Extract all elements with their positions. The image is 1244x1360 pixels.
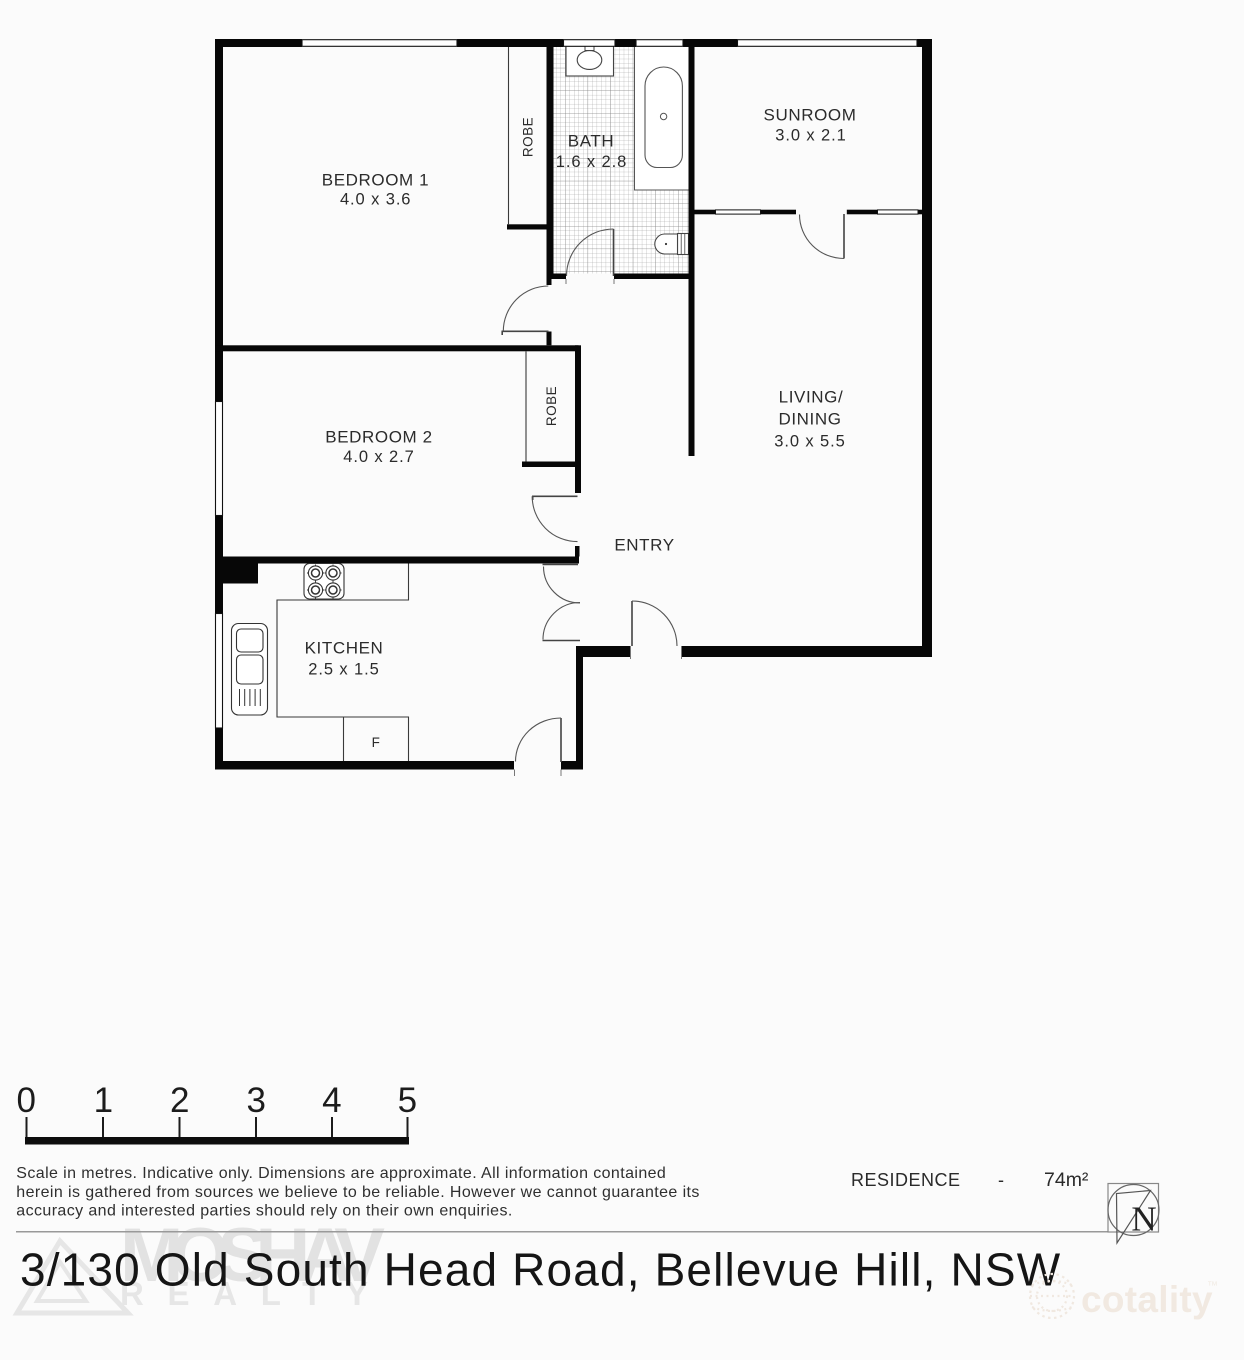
svg-text:LIVING/: LIVING/ [779,388,844,407]
svg-text:™: ™ [1207,1280,1218,1292]
svg-text:BEDROOM 1: BEDROOM 1 [322,171,429,190]
svg-text:F: F [372,735,381,750]
svg-text:1.6 x 2.8: 1.6 x 2.8 [556,153,627,171]
svg-text:4.0 x 2.7: 4.0 x 2.7 [343,448,414,466]
svg-text:BEDROOM 2: BEDROOM 2 [325,428,432,447]
svg-text:ENTRY: ENTRY [614,536,674,555]
svg-text:KITCHEN: KITCHEN [305,639,384,658]
svg-text:3.0 x 2.1: 3.0 x 2.1 [775,127,846,145]
svg-text:RESIDENCE: RESIDENCE [851,1170,961,1190]
svg-text:BATH: BATH [568,132,614,151]
svg-text:ROBE: ROBE [521,117,536,157]
svg-text:N: N [1131,1200,1156,1239]
svg-text:ROBE: ROBE [544,386,559,426]
svg-text:4: 4 [322,1081,341,1120]
svg-text:4.0 x 3.6: 4.0 x 3.6 [340,191,411,209]
svg-text:Scale in metres. Indicative on: Scale in metres. Indicative only. Dimens… [16,1165,666,1182]
svg-text:0: 0 [16,1081,35,1120]
svg-text:DINING: DINING [778,410,841,429]
svg-text:2: 2 [170,1081,189,1120]
svg-text:herein is gathered from source: herein is gathered from sources we belie… [16,1184,699,1201]
svg-text:3: 3 [246,1081,265,1120]
svg-text:5: 5 [398,1081,417,1120]
svg-text:3/130 Old South Head Road, Bel: 3/130 Old South Head Road, Bellevue Hill… [20,1244,1061,1296]
svg-text:cotality: cotality [1081,1279,1213,1320]
svg-text:accuracy and interested partie: accuracy and interested parties should r… [16,1203,512,1220]
svg-text:-: - [998,1170,1004,1190]
svg-text:2.5 x 1.5: 2.5 x 1.5 [308,661,379,679]
svg-text:3.0 x 5.5: 3.0 x 5.5 [774,433,845,451]
svg-text:1: 1 [94,1081,113,1120]
svg-text:74m²: 74m² [1044,1169,1089,1191]
svg-text:SUNROOM: SUNROOM [764,106,857,125]
